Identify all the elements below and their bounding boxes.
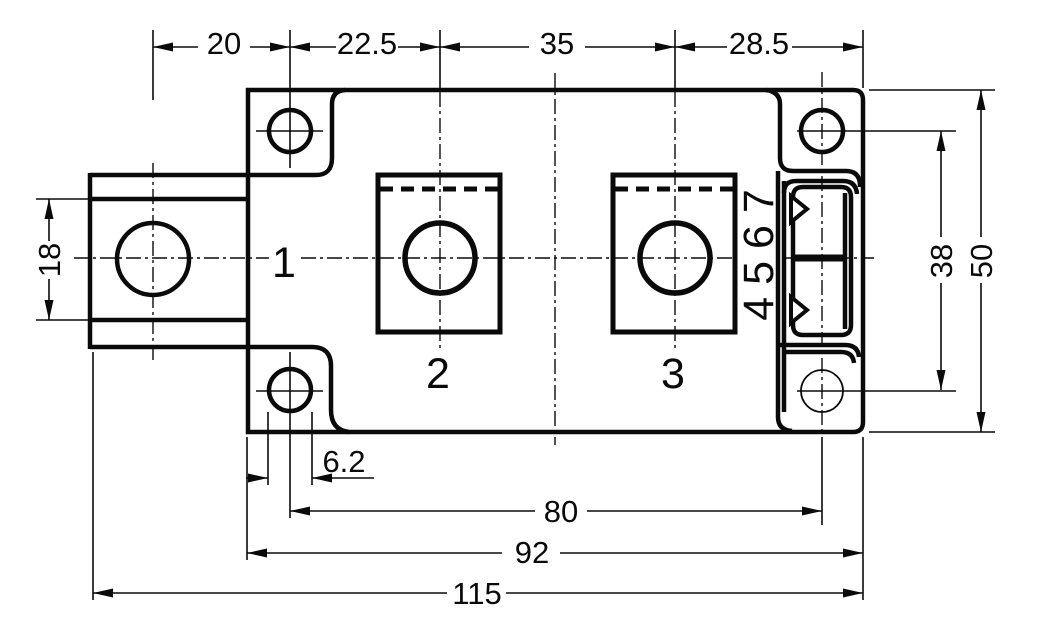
dim-bottom-92: 92 — [247, 535, 863, 570]
drawing-canvas: 20 22.5 35 28.5 18 38 50 — [0, 0, 1046, 634]
terminal-3-block — [613, 175, 735, 332]
flange-hole — [117, 223, 189, 295]
dim-bottom-6-2: 6.2 — [246, 444, 374, 483]
dim-label-6-2: 6.2 — [322, 444, 365, 479]
dim-top-28-5: 28.5 — [675, 26, 863, 61]
connector-notch-top — [791, 196, 807, 222]
pins-4567-label: 4 5 6 7 — [735, 189, 783, 321]
module-outline-drawing: 20 22.5 35 28.5 18 38 50 — [0, 0, 1046, 634]
dim-bottom-115: 115 — [93, 576, 863, 611]
dim-label-92: 92 — [515, 535, 549, 570]
terminal-1-label: 1 — [272, 239, 296, 287]
terminal-2-label: 2 — [426, 350, 450, 398]
dim-label-38: 38 — [924, 244, 959, 278]
dim-label-115: 115 — [452, 576, 501, 611]
dim-label-80: 80 — [544, 494, 578, 529]
dim-top-22-5: 22.5 — [290, 26, 440, 61]
dim-label-18: 18 — [32, 243, 67, 277]
dim-label-20: 20 — [207, 26, 241, 61]
left-flange — [90, 173, 246, 349]
dim-right-38: 38 — [924, 131, 959, 390]
dim-label-50: 50 — [964, 244, 999, 278]
dim-right-50: 50 — [964, 90, 999, 432]
connector-notch-bottom — [791, 297, 807, 323]
terminal-3-label: 3 — [661, 350, 685, 398]
dim-top-20: 20 — [153, 26, 290, 61]
dim-top-35: 35 — [440, 26, 675, 61]
dim-label-35: 35 — [540, 26, 574, 61]
terminal-2-block — [378, 175, 500, 332]
terminal-labels: 1 2 3 4 5 6 7 — [272, 189, 783, 398]
dim-bottom-80: 80 — [290, 494, 822, 529]
dim-left-18: 18 — [32, 199, 67, 320]
dim-label-22-5: 22.5 — [337, 26, 397, 61]
dim-label-28-5: 28.5 — [729, 26, 789, 61]
